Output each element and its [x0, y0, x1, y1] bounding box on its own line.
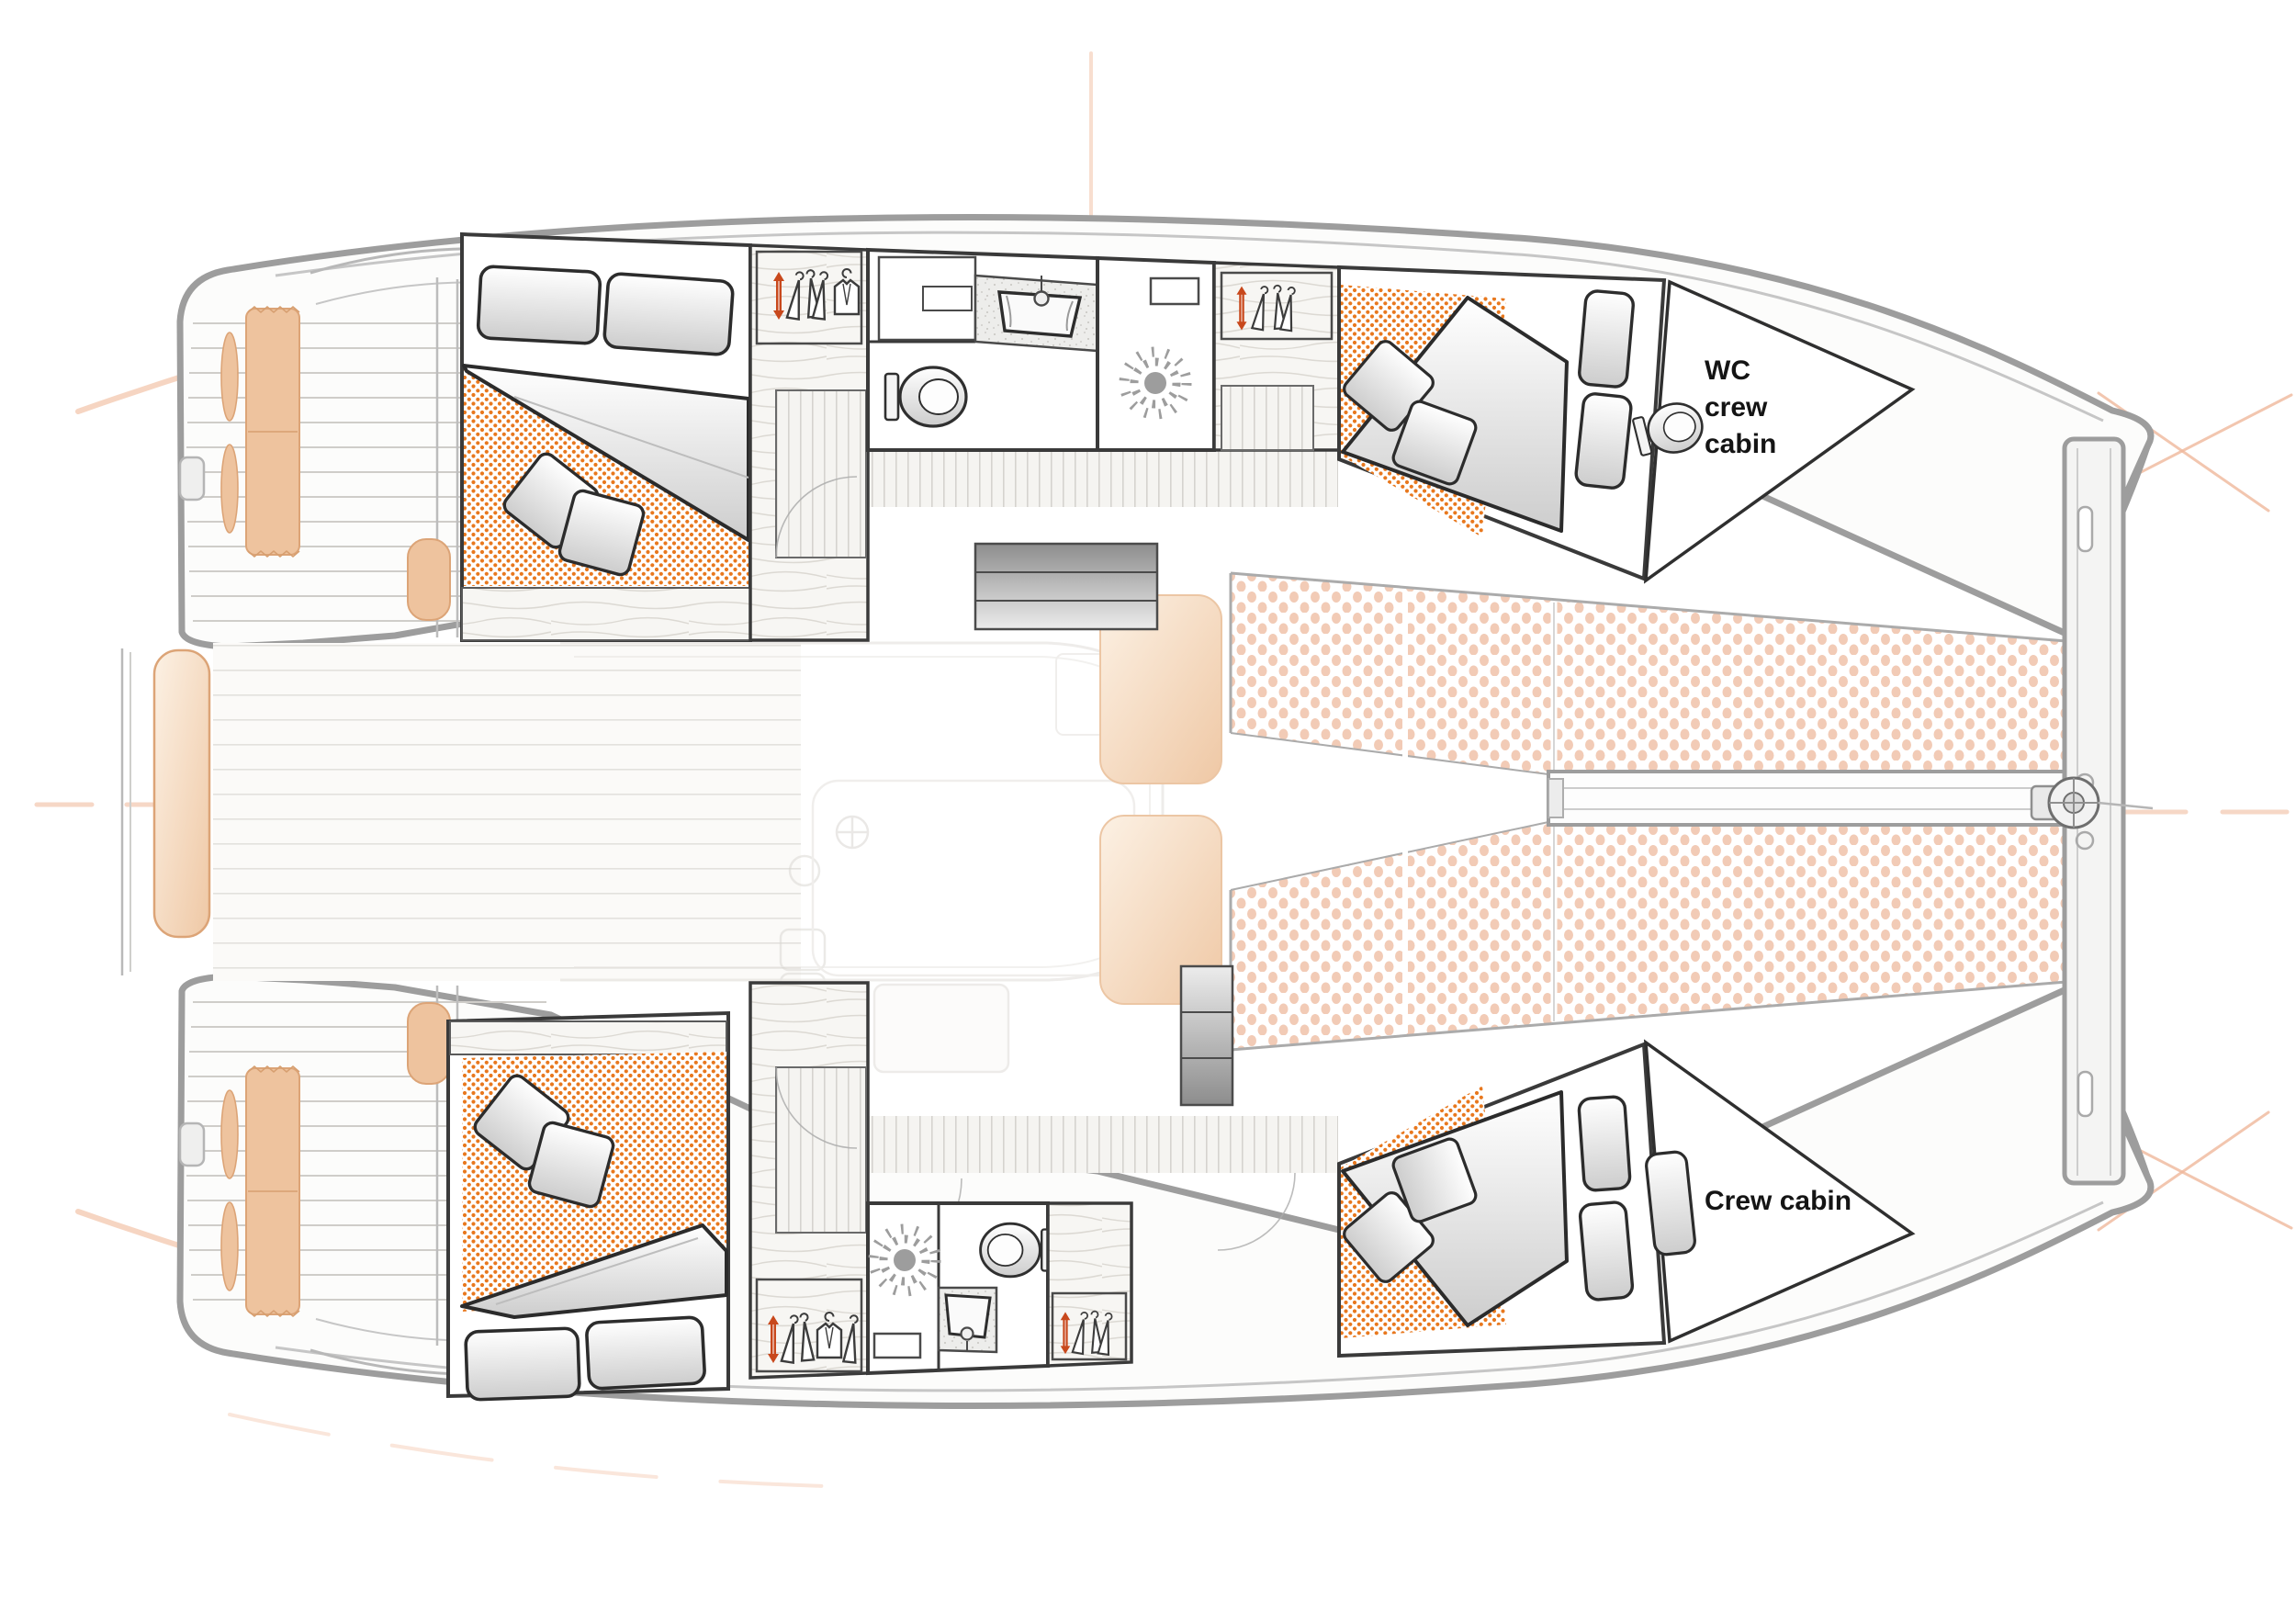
starboard-engine-hatch: [180, 1123, 204, 1166]
starboard-side-bench-cushion: [246, 1066, 299, 1316]
pillow-icon: [478, 266, 601, 344]
pillow-icon: [586, 1317, 705, 1389]
starboard-corner-seat: [408, 1003, 450, 1084]
pillow-icon: [1579, 1096, 1631, 1190]
starboard-rail-cushion-1: [221, 1202, 238, 1291]
pillow-icon: [466, 1328, 580, 1400]
starboard-forward-cabin: [1339, 1044, 1664, 1356]
port-bathroom: [868, 250, 1097, 450]
starboard-wardrobe-aft: [750, 983, 868, 1378]
port-rail-cushion-2: [221, 445, 238, 533]
port-wardrobe-fwd: [1214, 263, 1339, 450]
boat-plan-stage: WC crew cabin Crew cabin: [0, 0, 2296, 1623]
port-side-bench-cushion: [246, 307, 299, 557]
stairs-icon: [975, 544, 1157, 629]
catamaran-floor-plan: [0, 0, 2296, 1623]
pillow-icon: [1579, 290, 1635, 388]
helm-wheel-ghost: [837, 817, 868, 848]
toilet-icon: [981, 1223, 1053, 1277]
pillow-icon: [1645, 1151, 1695, 1256]
vanity-mirror: [923, 287, 972, 310]
cabin-entry-steps: [776, 390, 866, 558]
port-corner-seat: [408, 539, 450, 620]
cabin-entry-steps: [1221, 386, 1313, 450]
cabin-floor: [450, 1021, 726, 1054]
dinette-ghost: [813, 781, 1134, 975]
starboard-bathroom: [868, 1203, 1053, 1373]
cabin-entry-steps: [776, 1067, 866, 1233]
starboard-wardrobe-fwd: [1048, 1203, 1131, 1366]
windlass-icon: [2032, 778, 2153, 828]
pillow-icon: [1580, 1201, 1634, 1301]
aft-bench-cushion: [154, 650, 209, 937]
cabin-floor: [462, 588, 750, 640]
shower-window: [874, 1334, 920, 1358]
toilet-icon: [885, 367, 966, 426]
starboard-aft-cabin: [448, 1013, 728, 1400]
starboard-rail-cushion-2: [221, 1090, 238, 1178]
trampoline-upper: [1231, 573, 2066, 774]
crossbeam-slot-lower: [2078, 1072, 2092, 1116]
crew-cabin-label: Crew cabin: [1705, 1183, 1943, 1220]
port-forward-cabin: [1339, 267, 1664, 579]
cockpit-floor: [213, 643, 801, 981]
port-shower: [1097, 258, 1214, 450]
port-wardrobe-aft: [750, 245, 868, 640]
port-engine-hatch: [180, 457, 204, 500]
crossbeam-slot-upper: [2078, 507, 2092, 551]
port-hull-interior: [462, 234, 1912, 640]
shower-window: [1151, 278, 1199, 304]
stairs-icon: [1181, 966, 1232, 1105]
port-rail-cushion-1: [221, 332, 238, 421]
cockpit-table-ghost: [874, 985, 1008, 1072]
port-aft-cabin: [462, 234, 750, 640]
bowsprit-beam: [1548, 772, 2068, 825]
pillow-icon: [1575, 393, 1632, 490]
wc-crew-cabin-label: WC crew cabin: [1705, 353, 1815, 463]
pillow-icon: [603, 273, 733, 355]
